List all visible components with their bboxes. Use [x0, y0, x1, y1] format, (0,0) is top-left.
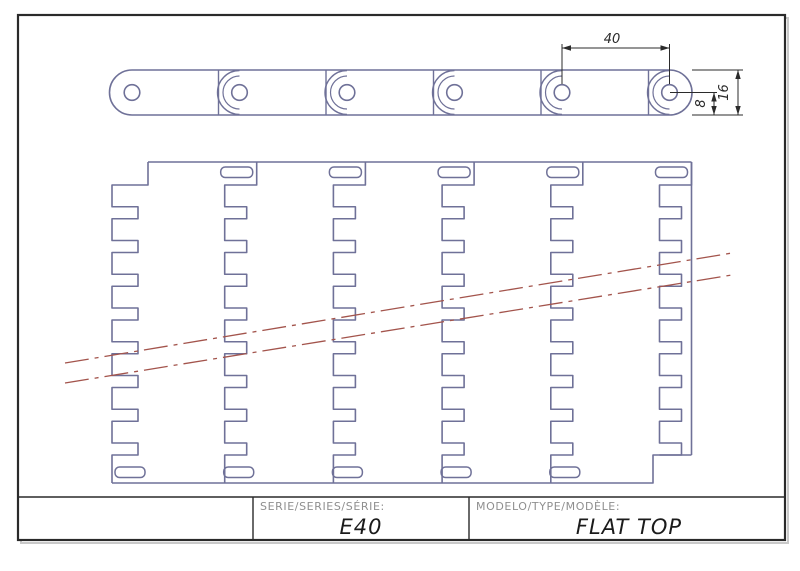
- model-field-value: FLAT TOP: [576, 515, 682, 539]
- dimension-pitch-label: 40: [604, 32, 621, 47]
- dimension-height-label: 16: [717, 84, 732, 101]
- frame-border: [18, 15, 785, 540]
- page-frame: [18, 15, 788, 543]
- series-field-value: E40: [340, 515, 383, 539]
- dimension-pin-bottom-label: 8: [694, 99, 709, 107]
- technical-drawing-canvas: 40 16 8 SERIE/SERIES/SÉRIE: E40 MODELO/T…: [0, 0, 800, 566]
- drawing-sheet: 40 16 8 SERIE/SERIES/SÉRIE: E40 MODELO/T…: [0, 0, 800, 566]
- model-field-label: MODELO/TYPE/MODÈLE:: [476, 500, 620, 513]
- series-field-label: SERIE/SERIES/SÉRIE:: [260, 500, 385, 513]
